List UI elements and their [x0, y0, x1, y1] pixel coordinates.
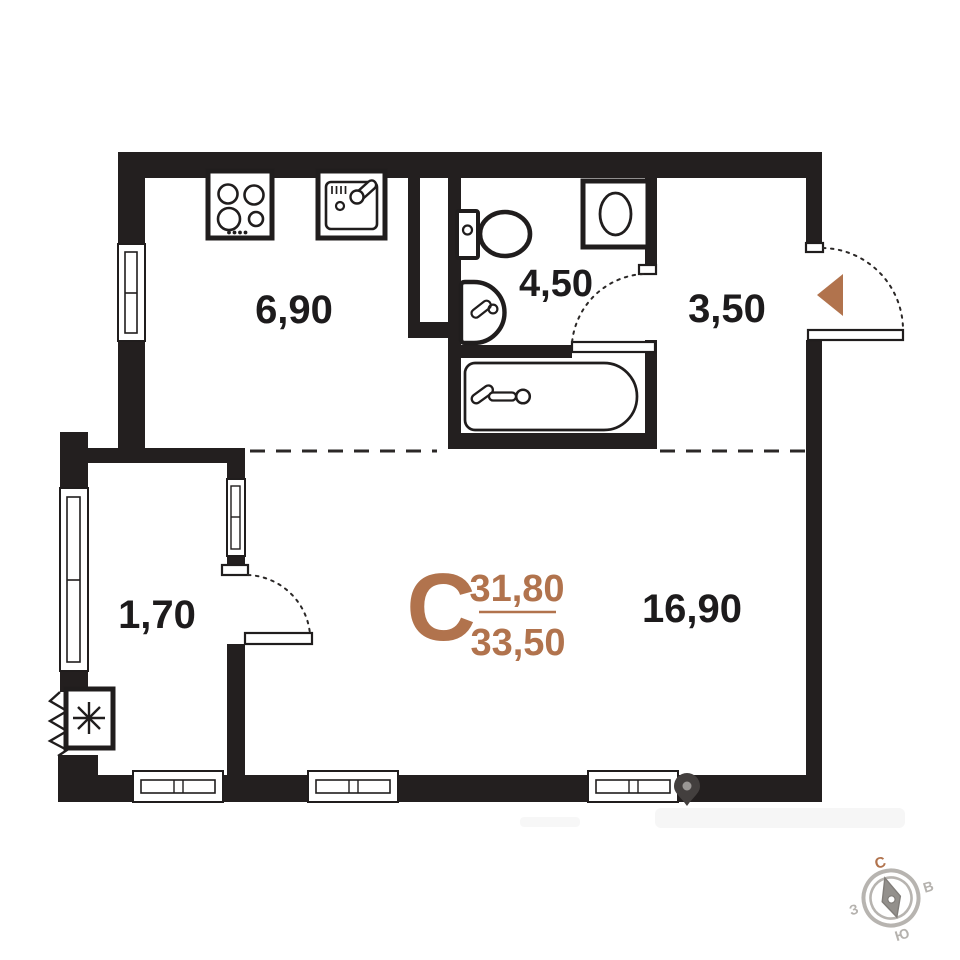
wall-segment: [450, 345, 572, 358]
wall-segment: [60, 463, 88, 488]
wall-segment: [118, 341, 145, 463]
section-letter: С: [406, 554, 475, 661]
floor-plan-canvas: 6,90 4,50 3,50 1,70 16,90 С 31,80 33,50 …: [0, 0, 960, 960]
wall-segment: [408, 178, 420, 324]
area-upper-value: 31,80: [469, 568, 564, 610]
wardrobe-window-icon: [60, 488, 88, 671]
kitchen-sink-icon: [318, 171, 385, 238]
wall-segment: [60, 448, 245, 463]
wardrobe-door-arc: [248, 575, 310, 634]
bottom-window-1-icon: [133, 771, 223, 802]
bathroom-door-sill: [639, 265, 656, 274]
wall-segment: [227, 463, 245, 479]
compass-rose-icon: С В Ю З: [836, 842, 946, 955]
bottom-window-2-icon: [308, 771, 398, 802]
entrance-arrow-icon: [817, 274, 843, 316]
walls: [58, 152, 822, 802]
bathtub-icon: [465, 363, 637, 430]
apartment-summary: С 31,80 33,50: [406, 554, 565, 664]
compass-west-label: З: [847, 900, 860, 918]
compass-east-label: В: [921, 877, 935, 895]
entrance-door-leaf: [808, 330, 903, 340]
partition-glazing-icon: [227, 479, 245, 556]
floor-plan-svg: 6,90 4,50 3,50 1,70 16,90 С 31,80 33,50 …: [0, 0, 960, 960]
bottom-window-3-icon: [588, 771, 678, 802]
bathroom-door-leaf: [572, 342, 655, 352]
entrance-door-sill: [806, 243, 823, 252]
wall-segment: [806, 340, 822, 802]
wall-segment: [448, 433, 657, 449]
stove-icon: [208, 171, 272, 238]
wall-segment: [645, 340, 657, 449]
bathroom-sink-icon: [461, 282, 505, 343]
kitchen-area-label: 6,90: [255, 288, 333, 332]
toilet-icon: [457, 211, 530, 258]
wall-segment: [806, 152, 822, 243]
hallway-area-label: 3,50: [688, 287, 766, 331]
living-area-label: 16,90: [642, 587, 742, 631]
faint-watermark: [520, 808, 905, 828]
kitchen-window-icon: [118, 244, 145, 341]
wardrobe-door-leaf: [245, 633, 312, 644]
area-lower-value: 33,50: [470, 622, 565, 664]
compass-south-label: Ю: [893, 925, 911, 945]
wall-segment: [227, 556, 245, 565]
ac-unit-icon: [66, 689, 113, 748]
wall-segment: [227, 644, 245, 802]
bathroom-area-label: 4,50: [519, 263, 593, 305]
wall-segment: [118, 152, 145, 244]
washing-machine-icon: [583, 181, 648, 247]
compass-north-label: С: [873, 853, 888, 872]
wardrobe-area-label: 1,70: [118, 593, 196, 637]
wardrobe-door-sill: [222, 565, 248, 575]
